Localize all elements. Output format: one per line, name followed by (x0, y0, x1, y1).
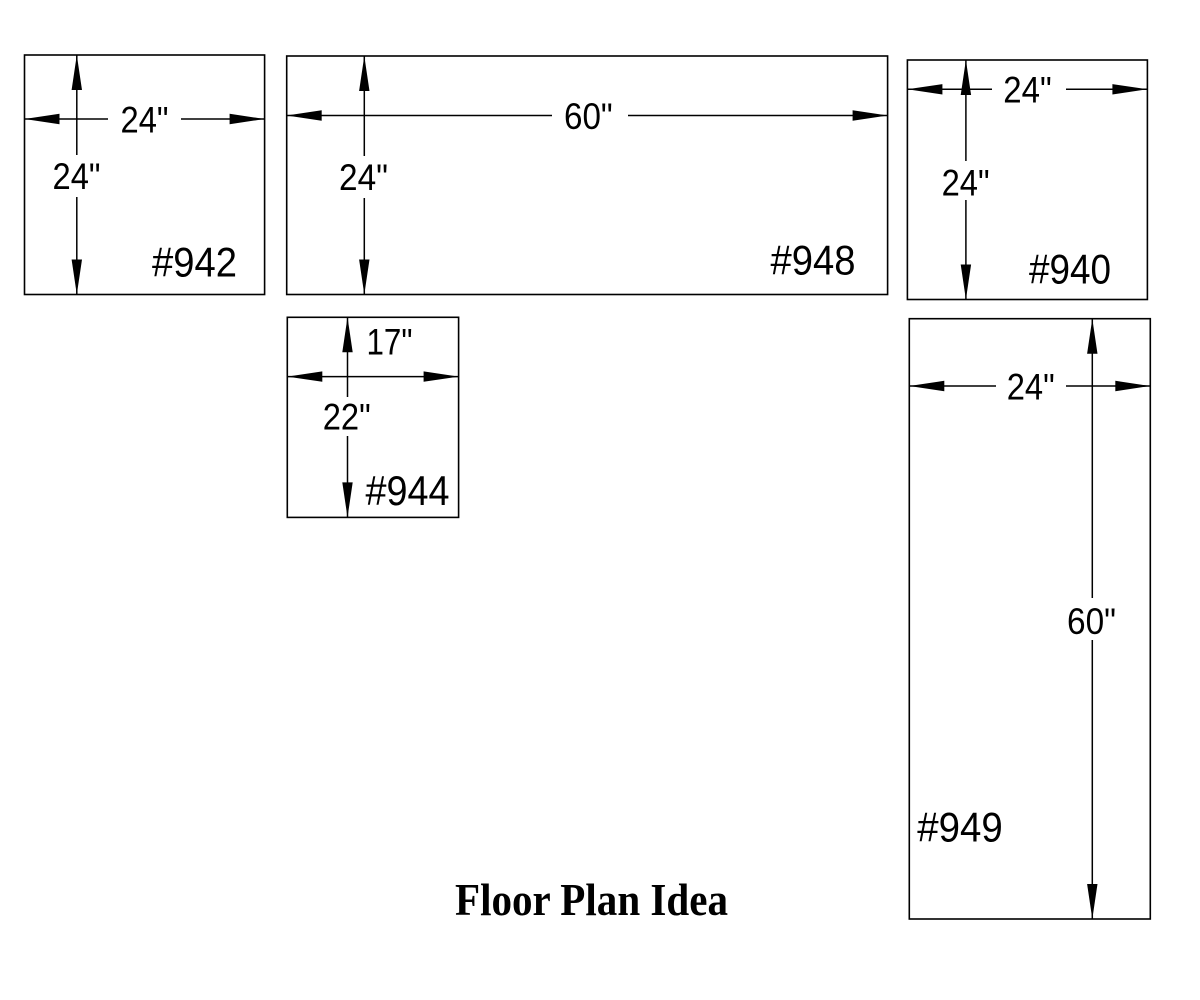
svg-text:22": 22" (323, 397, 371, 438)
svg-text:24": 24" (53, 156, 101, 197)
svg-text:#940: #940 (1029, 246, 1111, 293)
svg-text:#942: #942 (152, 239, 237, 286)
svg-text:60": 60" (564, 96, 613, 137)
svg-text:24": 24" (1003, 70, 1051, 111)
svg-text:17": 17" (367, 322, 413, 363)
svg-text:#949: #949 (917, 803, 1003, 850)
svg-text:24": 24" (339, 157, 388, 198)
svg-text:Floor Plan Idea: Floor Plan Idea (455, 874, 728, 925)
svg-text:24": 24" (942, 162, 990, 203)
svg-text:#948: #948 (771, 237, 856, 284)
svg-text:#944: #944 (366, 467, 450, 514)
svg-text:60": 60" (1067, 601, 1116, 642)
svg-text:24": 24" (1007, 366, 1055, 407)
svg-text:24": 24" (121, 99, 169, 140)
